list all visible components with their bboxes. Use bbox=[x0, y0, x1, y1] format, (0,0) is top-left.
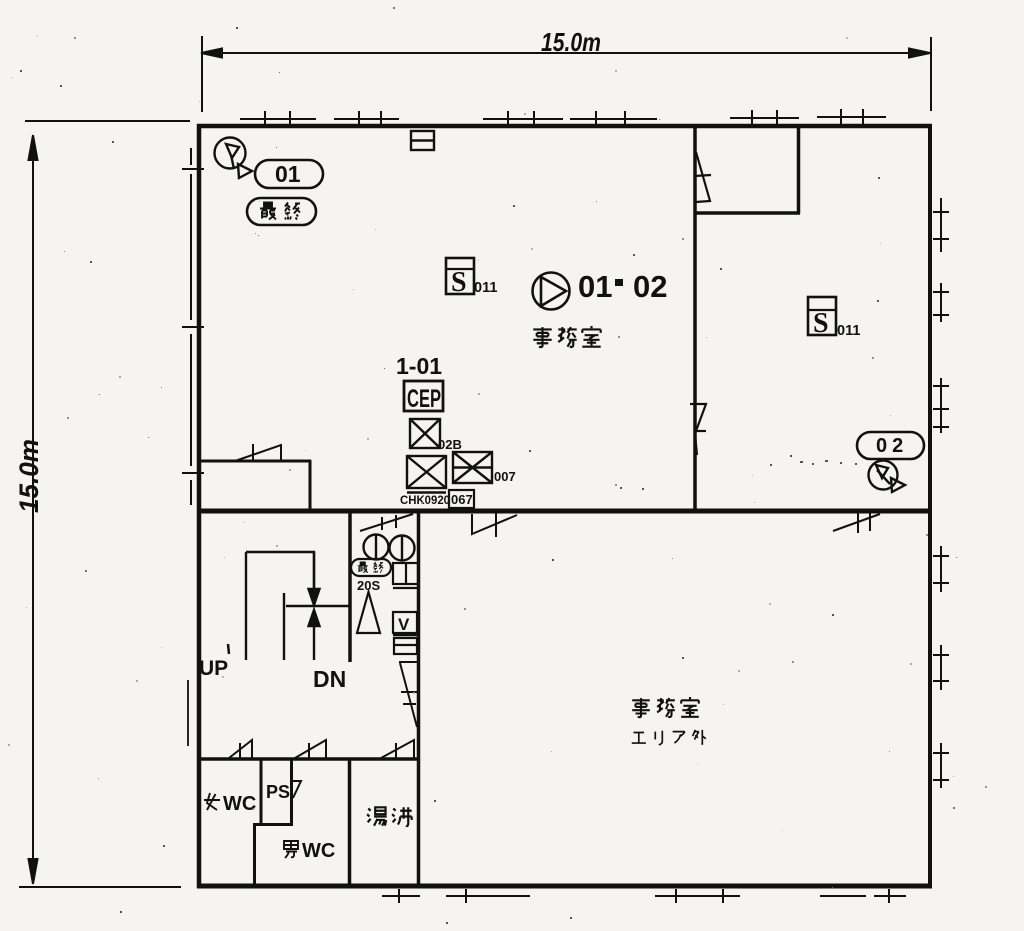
svg-text:V: V bbox=[398, 615, 410, 634]
svg-text:02B: 02B bbox=[438, 437, 462, 452]
svg-text:WC: WC bbox=[223, 793, 256, 815]
svg-text:01: 01 bbox=[275, 161, 301, 187]
svg-text:S: S bbox=[451, 267, 467, 298]
svg-text:15.0m: 15.0m bbox=[14, 439, 44, 513]
svg-text:PS: PS bbox=[266, 782, 290, 802]
svg-text:01: 01 bbox=[578, 269, 612, 304]
svg-text:02: 02 bbox=[633, 269, 667, 304]
svg-text:007: 007 bbox=[494, 469, 516, 484]
svg-text:011: 011 bbox=[837, 323, 860, 339]
svg-text:02: 02 bbox=[876, 435, 908, 457]
svg-text:CEP: CEP bbox=[407, 385, 441, 413]
svg-text:CHK0920: CHK0920 bbox=[400, 493, 450, 507]
svg-text:S: S bbox=[813, 308, 829, 339]
svg-text:WC: WC bbox=[302, 840, 335, 862]
svg-text:067: 067 bbox=[451, 492, 473, 507]
svg-text:1-01: 1-01 bbox=[396, 353, 442, 379]
svg-text:011: 011 bbox=[474, 280, 497, 296]
svg-text:DN: DN bbox=[313, 666, 346, 692]
